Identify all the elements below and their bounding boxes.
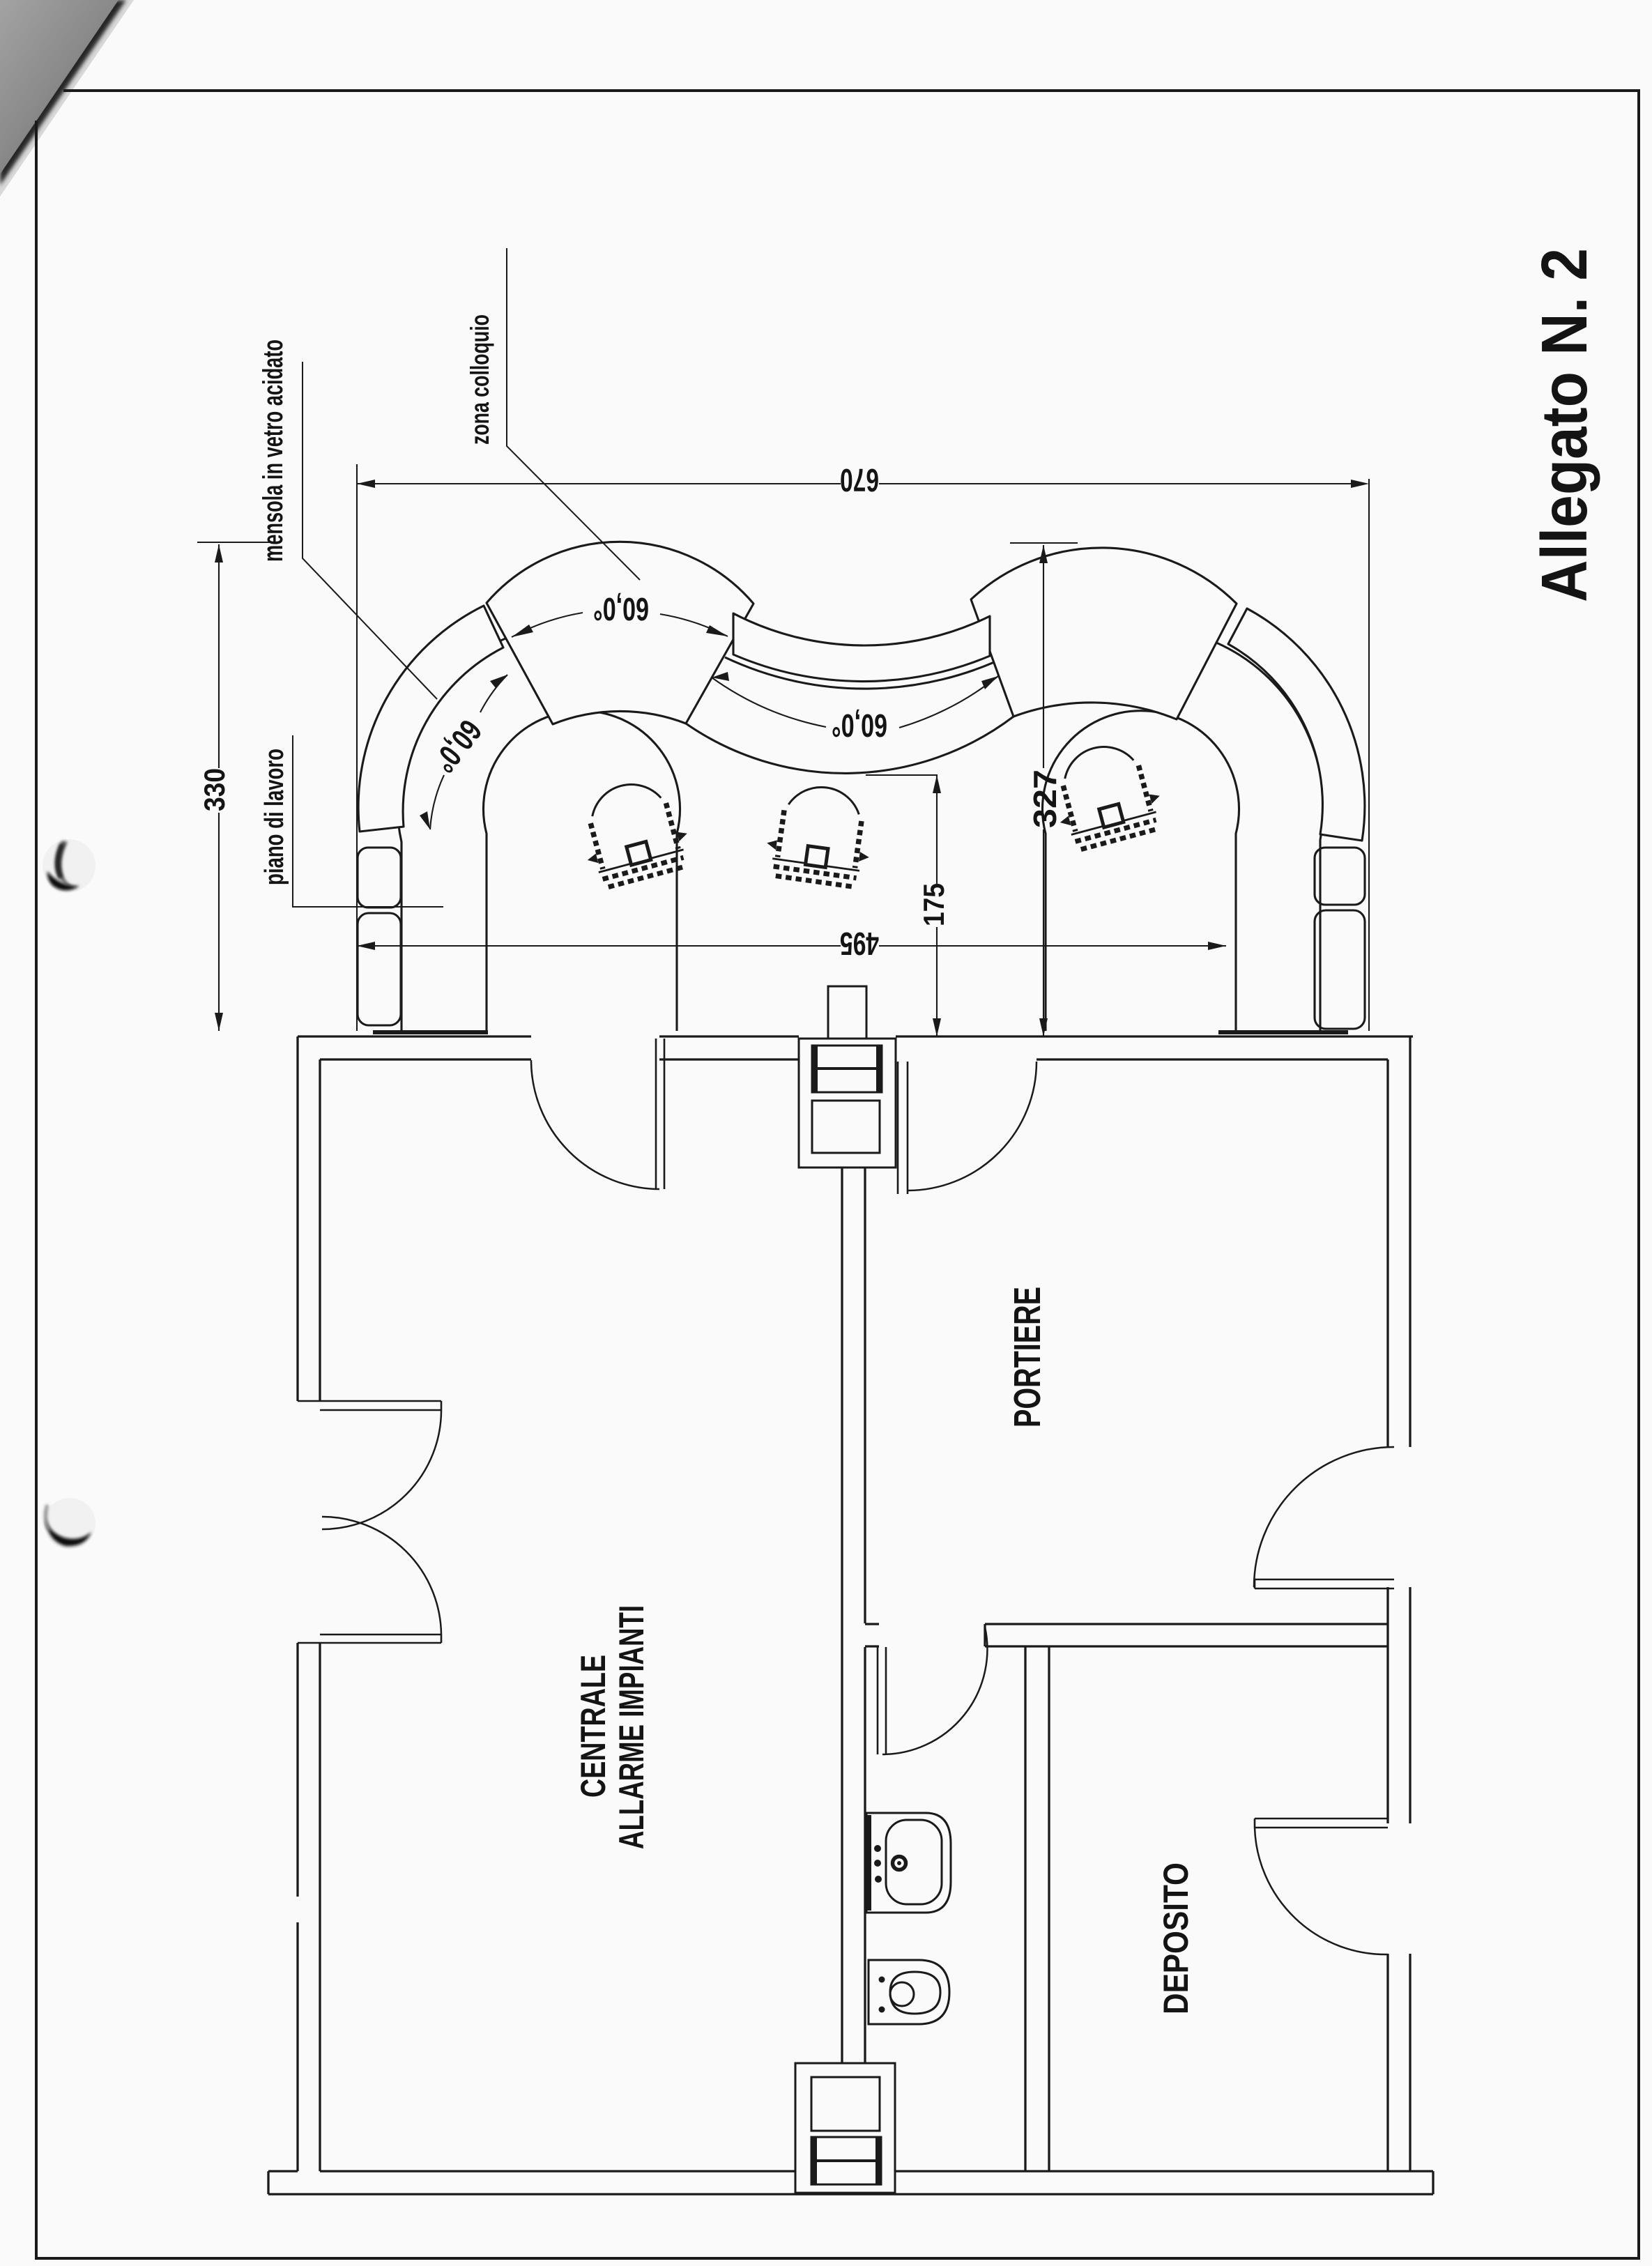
svg-text:Allegato N. 2: Allegato N. 2: [1528, 248, 1600, 602]
svg-text:330: 330: [198, 768, 231, 811]
svg-text:327: 327: [1027, 770, 1063, 828]
svg-text:60,0°: 60,0°: [593, 591, 649, 627]
svg-text:mensola in vetro acidato: mensola in vetro acidato: [258, 339, 289, 562]
svg-text:PORTIERE: PORTIERE: [1007, 1287, 1048, 1427]
svg-text:495: 495: [840, 926, 879, 962]
svg-text:zona colloquio: zona colloquio: [466, 314, 494, 445]
svg-text:ALLARME IMPIANTI: ALLARME IMPIANTI: [612, 1605, 651, 1849]
svg-text:175: 175: [917, 883, 950, 926]
svg-text:CENTRALE: CENTRALE: [574, 1655, 613, 1798]
svg-text:piano di lavoro: piano di lavoro: [260, 749, 289, 885]
svg-text:670: 670: [840, 462, 879, 498]
svg-text:60,0°: 60,0°: [832, 707, 887, 744]
svg-text:DEPOSITO: DEPOSITO: [1156, 1862, 1195, 2014]
